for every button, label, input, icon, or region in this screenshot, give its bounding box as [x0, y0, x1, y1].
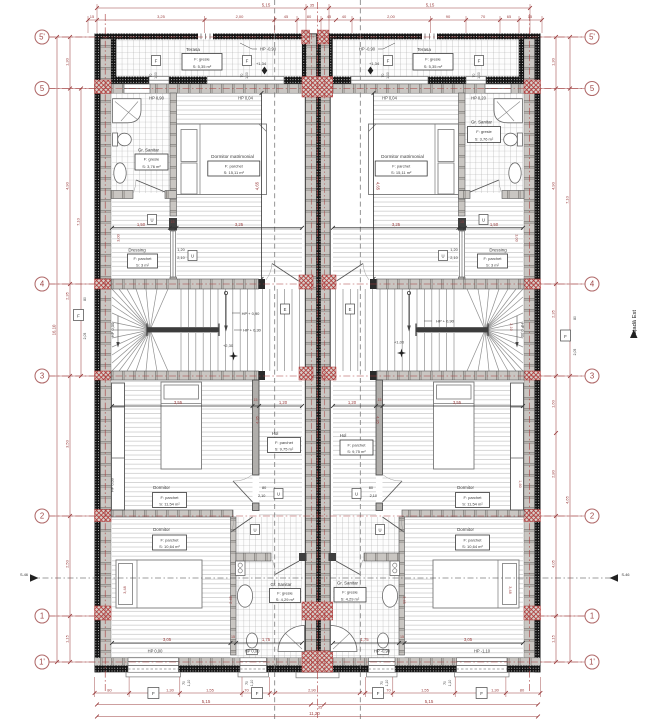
svg-text:HP 0,04: HP 0,04 [238, 96, 253, 101]
svg-text:2,45: 2,45 [402, 596, 406, 603]
svg-text:4,65: 4,65 [255, 181, 260, 190]
svg-text:4,65: 4,65 [565, 495, 570, 504]
svg-text:HP 0,00: HP 0,00 [520, 323, 525, 338]
svg-text:2,35: 2,35 [65, 291, 70, 300]
svg-text:80: 80 [369, 486, 373, 490]
svg-text:S: 3,76 m²: S: 3,76 m² [142, 164, 161, 169]
svg-text:Dormitor matrimonial: Dormitor matrimonial [381, 154, 424, 159]
svg-text:F: gresie: F: gresie [476, 129, 492, 134]
svg-text:4,90: 4,90 [65, 181, 70, 190]
svg-text:F: F [478, 58, 481, 63]
svg-text:HP -0,90: HP -0,90 [359, 47, 376, 52]
svg-text:15: 15 [378, 398, 382, 402]
svg-text:1,20: 1,20 [450, 248, 457, 252]
svg-text:3,55: 3,55 [174, 400, 183, 405]
svg-text:1,55: 1,55 [421, 688, 430, 693]
svg-text:15: 15 [254, 398, 258, 402]
svg-text:F: gresie: F: gresie [342, 590, 358, 595]
svg-text:90: 90 [446, 14, 451, 19]
svg-text:2,00: 2,00 [387, 14, 396, 19]
svg-text:2,10: 2,10 [509, 323, 513, 330]
svg-text:+2,30: +2,30 [223, 343, 234, 348]
svg-text:S: 9,75 m²: S: 9,75 m² [347, 449, 366, 454]
svg-text:Hol: Hol [340, 433, 347, 438]
svg-text:15: 15 [90, 14, 95, 19]
svg-text:45: 45 [327, 14, 332, 19]
svg-text:1,30: 1,30 [65, 57, 70, 66]
svg-text:70: 70 [182, 681, 186, 685]
svg-text:2,50: 2,50 [65, 559, 70, 568]
svg-text:F: gresie: F: gresie [425, 56, 441, 61]
svg-text:5,15: 5,15 [426, 3, 435, 8]
svg-text:HP -1,10: HP -1,10 [474, 649, 491, 654]
svg-text:70: 70 [443, 681, 447, 685]
svg-text:1': 1' [39, 658, 45, 667]
svg-text:E: E [349, 307, 352, 312]
svg-text:HP 0,00: HP 0,00 [245, 649, 260, 654]
svg-text:2,10: 2,10 [258, 494, 265, 498]
svg-text:S: 5,35 m²: S: 5,35 m² [424, 64, 443, 69]
svg-text:80: 80 [262, 486, 266, 490]
svg-text:HP 0,90: HP 0,90 [149, 96, 164, 101]
svg-text:F: parchet: F: parchet [463, 495, 482, 500]
svg-text:1,55: 1,55 [206, 688, 215, 693]
svg-text:1,10: 1,10 [448, 680, 452, 687]
svg-text:80: 80 [107, 688, 112, 693]
svg-text:4,35: 4,35 [376, 416, 380, 423]
svg-text:1,60: 1,60 [518, 480, 522, 487]
svg-text:3,25: 3,25 [157, 14, 166, 19]
svg-text:80: 80 [83, 297, 87, 301]
svg-text:S: 11,54 m²: S: 11,54 m² [159, 502, 180, 507]
svg-text:F: gresie: F: gresie [277, 590, 293, 595]
svg-text:15: 15 [460, 220, 464, 224]
svg-text:1,75: 1,75 [262, 637, 271, 642]
svg-text:S: 9,75 m²: S: 9,75 m² [275, 447, 294, 452]
svg-text:1,20: 1,20 [279, 400, 288, 405]
svg-text:HP 0,20: HP 0,20 [471, 96, 486, 101]
svg-text:1': 1' [589, 658, 595, 667]
svg-text:S: 3,76 m²: S: 3,76 m² [475, 137, 494, 142]
svg-text:4,90: 4,90 [551, 181, 556, 190]
svg-text:15: 15 [171, 220, 175, 224]
svg-text:5,15: 5,15 [425, 699, 434, 704]
svg-text:15: 15 [231, 635, 235, 639]
svg-text:3,05: 3,05 [163, 637, 172, 642]
svg-text:Dormitor: Dormitor [153, 527, 170, 532]
svg-text:U: U [253, 527, 256, 532]
svg-text:4,35: 4,35 [256, 416, 260, 423]
svg-text:S-46: S-46 [20, 573, 28, 577]
svg-text:70: 70 [472, 74, 476, 78]
svg-text:5: 5 [590, 84, 595, 93]
svg-text:2: 2 [40, 512, 44, 521]
svg-text:F: parchet: F: parchet [275, 440, 294, 445]
svg-text:F: gresie: F: gresie [144, 157, 160, 162]
svg-text:HP -0,90: HP -0,90 [260, 47, 277, 52]
svg-text:S: 10,64 m²: S: 10,64 m² [462, 544, 483, 549]
svg-text:HP 0,00: HP 0,00 [148, 649, 163, 654]
svg-text:F: parchet: F: parchet [347, 442, 366, 447]
svg-text:1,30: 1,30 [491, 688, 500, 693]
svg-text:U: U [150, 217, 153, 222]
svg-text:Fațadă Est: Fațadă Est [632, 310, 638, 338]
svg-text:F: parchet: F: parchet [133, 256, 152, 261]
svg-text:70: 70 [149, 74, 153, 78]
svg-text:3,50: 3,50 [65, 439, 70, 448]
svg-text:70: 70 [386, 688, 391, 693]
svg-text:11,20: 11,20 [309, 711, 320, 716]
svg-text:45: 45 [284, 14, 289, 19]
svg-text:70: 70 [481, 14, 486, 19]
svg-text:HP 0,00: HP 0,00 [110, 322, 115, 337]
svg-text:HP + 0,90: HP + 0,90 [242, 311, 261, 316]
svg-text:5: 5 [40, 84, 45, 93]
svg-text:70: 70 [381, 74, 385, 78]
svg-text:7,10: 7,10 [565, 195, 570, 204]
svg-text:4,05: 4,05 [551, 559, 556, 568]
svg-text:Hol: Hol [272, 431, 279, 436]
svg-text:2: 2 [590, 512, 594, 521]
svg-text:16,10: 16,10 [52, 324, 57, 335]
svg-text:S: 4,29 m²: S: 4,29 m² [276, 597, 295, 602]
svg-text:+1,34: +1,34 [256, 61, 267, 66]
svg-text:F: F [77, 314, 80, 319]
svg-text:U: U [355, 491, 358, 496]
svg-text:Dormitor: Dormitor [153, 485, 170, 490]
svg-text:HP + 0,30: HP + 0,30 [243, 328, 262, 333]
svg-text:HP 0,04: HP 0,04 [382, 96, 397, 101]
svg-text:Dressing: Dressing [489, 248, 507, 253]
svg-text:5': 5' [39, 33, 45, 42]
svg-text:F: F [152, 691, 155, 696]
svg-text:2,45: 2,45 [229, 596, 233, 603]
svg-text:1,20: 1,20 [177, 248, 184, 252]
svg-text:S-46: S-46 [621, 573, 629, 577]
svg-text:F: F [155, 58, 158, 63]
svg-text:70: 70 [380, 681, 384, 685]
svg-text:Terasa: Terasa [417, 47, 431, 52]
svg-text:35: 35 [318, 705, 323, 710]
svg-text:+1,00: +1,00 [394, 340, 405, 345]
svg-text:Dormitor: Dormitor [457, 527, 474, 532]
svg-text:F: F [480, 691, 483, 696]
svg-text:U: U [277, 491, 280, 496]
svg-text:3,25: 3,25 [235, 222, 244, 227]
svg-text:Dormitor: Dormitor [457, 485, 474, 490]
svg-text:1,10: 1,10 [250, 680, 254, 687]
svg-text:15: 15 [528, 14, 533, 19]
svg-text:U: U [441, 253, 444, 258]
svg-text:Gr. Sanitar: Gr. Sanitar [271, 582, 293, 587]
svg-text:U: U [378, 527, 381, 532]
svg-text:5,15: 5,15 [202, 699, 211, 704]
svg-text:3,05: 3,05 [464, 637, 473, 642]
svg-text:F: F [564, 334, 567, 339]
svg-text:+1,34: +1,34 [369, 61, 380, 66]
svg-text:1,30: 1,30 [551, 57, 556, 66]
svg-text:F: parchet: F: parchet [463, 537, 482, 542]
svg-text:S: 3 m²: S: 3 m² [486, 262, 500, 267]
svg-text:S: 10,64 m²: S: 10,64 m² [159, 544, 180, 549]
svg-text:70: 70 [245, 681, 249, 685]
svg-text:2,05: 2,05 [573, 349, 577, 356]
svg-text:1,50: 1,50 [137, 222, 146, 227]
svg-text:F: parchet: F: parchet [160, 495, 179, 500]
svg-text:Gr. Sanitar: Gr. Sanitar [138, 148, 160, 153]
svg-text:F: parchet: F: parchet [225, 163, 244, 168]
svg-text:3: 3 [590, 372, 594, 381]
svg-text:70: 70 [244, 688, 249, 693]
svg-text:F: parchet: F: parchet [160, 537, 179, 542]
svg-text:S: 5,35 m²: S: 5,35 m² [193, 64, 212, 69]
svg-text:1,60: 1,60 [551, 399, 556, 408]
svg-text:2,10: 2,10 [450, 256, 457, 260]
svg-text:Dormitor matrimonial: Dormitor matrimonial [211, 154, 254, 159]
svg-text:3,55: 3,55 [453, 400, 462, 405]
svg-text:15: 15 [400, 635, 404, 639]
svg-text:1,10: 1,10 [187, 680, 191, 687]
svg-text:80: 80 [520, 688, 525, 693]
svg-text:F: gresie: F: gresie [194, 56, 210, 61]
svg-text:E: E [284, 307, 287, 312]
svg-text:F: F [246, 58, 249, 63]
svg-text:5': 5' [589, 33, 595, 42]
svg-text:2,35: 2,35 [551, 309, 556, 318]
svg-text:4,65: 4,65 [376, 182, 381, 191]
svg-text:3: 3 [40, 372, 44, 381]
svg-text:3,48: 3,48 [123, 586, 127, 593]
svg-text:1,15: 1,15 [551, 634, 556, 643]
svg-text:80: 80 [307, 14, 312, 19]
svg-text:2,90: 2,90 [308, 688, 317, 693]
svg-text:S: 3 m²: S: 3 m² [136, 262, 150, 267]
svg-text:1,75: 1,75 [360, 637, 369, 642]
svg-text:HP -0,90: HP -0,90 [374, 649, 391, 654]
svg-text:Terasa: Terasa [186, 47, 200, 52]
svg-text:40: 40 [342, 14, 347, 19]
svg-text:S: 15,11 m²: S: 15,11 m² [224, 170, 245, 175]
svg-text:2,80: 2,80 [551, 469, 556, 478]
svg-text:1,20: 1,20 [348, 400, 357, 405]
svg-text:F: F [377, 691, 380, 696]
svg-text:1: 1 [590, 612, 594, 621]
svg-text:3,00: 3,00 [117, 234, 121, 241]
svg-text:F: parchet: F: parchet [392, 163, 411, 168]
svg-text:2,10: 2,10 [370, 494, 377, 498]
svg-text:1,30: 1,30 [166, 688, 175, 693]
svg-text:3,00: 3,00 [515, 234, 519, 241]
svg-text:1,00: 1,00 [477, 72, 481, 79]
svg-text:7,10: 7,10 [76, 217, 81, 226]
svg-text:U: U [482, 217, 485, 222]
svg-text:S: 15,11 m²: S: 15,11 m² [391, 170, 412, 175]
svg-text:1,50: 1,50 [490, 222, 499, 227]
svg-text:5,15: 5,15 [262, 3, 271, 8]
svg-text:Dressing: Dressing [128, 248, 146, 253]
svg-text:2,10: 2,10 [177, 256, 184, 260]
svg-text:3,48: 3,48 [508, 586, 512, 593]
svg-text:4: 4 [40, 280, 45, 289]
svg-text:S: 11,54 m²: S: 11,54 m² [462, 502, 483, 507]
svg-text:80: 80 [573, 316, 577, 320]
svg-text:1,00: 1,00 [245, 72, 249, 79]
svg-text:65: 65 [507, 14, 512, 19]
svg-text:F: F [256, 691, 259, 696]
svg-text:F: parchet: F: parchet [483, 256, 502, 261]
svg-text:1,15: 1,15 [65, 634, 70, 643]
svg-text:HP + 0,90: HP + 0,90 [436, 319, 455, 324]
svg-text:3,25: 3,25 [392, 222, 401, 227]
svg-text:1,00: 1,00 [154, 72, 158, 79]
svg-text:1: 1 [40, 612, 44, 621]
svg-text:U: U [191, 253, 194, 258]
svg-text:F: F [387, 58, 390, 63]
svg-text:1,00: 1,00 [386, 72, 390, 79]
svg-text:2,05: 2,05 [83, 333, 87, 340]
svg-text:2,00: 2,00 [236, 14, 245, 19]
svg-text:35: 35 [310, 3, 315, 8]
svg-text:4: 4 [590, 280, 595, 289]
svg-text:70: 70 [240, 74, 244, 78]
svg-text:S: 4,29 m²: S: 4,29 m² [341, 596, 360, 601]
svg-text:HP 0,00: HP 0,00 [111, 478, 115, 492]
svg-text:1,10: 1,10 [385, 680, 389, 687]
svg-text:Gr. Sanitar: Gr. Sanitar [337, 581, 359, 586]
svg-text:Gr. Sanitar: Gr. Sanitar [471, 120, 493, 125]
